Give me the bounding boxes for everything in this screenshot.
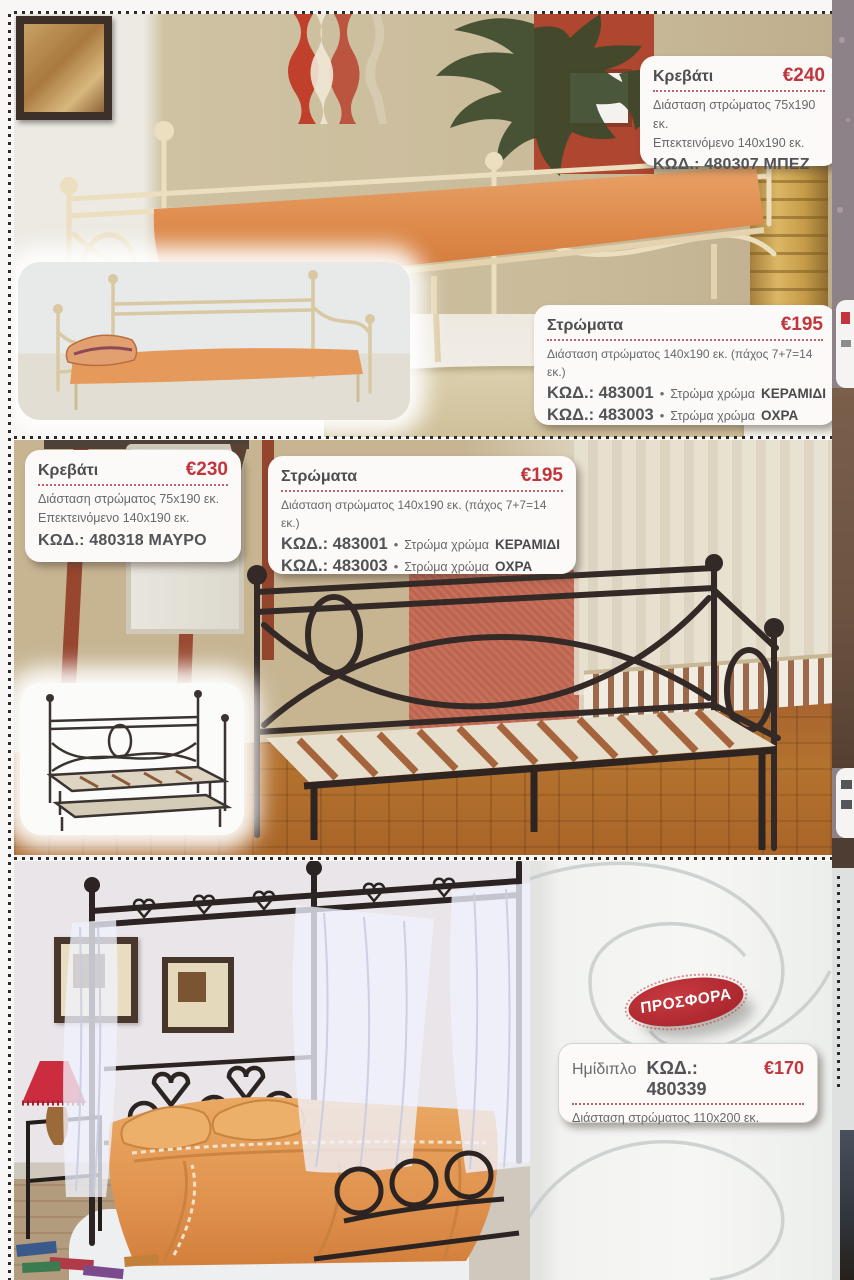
left-dotted-border bbox=[8, 14, 11, 1280]
bullet: • bbox=[394, 559, 399, 574]
bullet: • bbox=[660, 386, 665, 401]
product-title: Στρώματα bbox=[281, 468, 357, 486]
product-info-box-bed-beige: Κρεβάτι €240 Διάσταση στρώματος 75x190 ε… bbox=[640, 56, 832, 166]
color-name: ΟΧΡΑ bbox=[761, 408, 798, 423]
mattress-code-row: ΚΩΔ.: 483003 • Στρώμα χρώμα ΟΧΡΑ bbox=[281, 557, 563, 576]
edge-partial-text bbox=[841, 780, 852, 789]
mattress-dimension: Διάσταση στρώματος 75x190 εκ. bbox=[653, 96, 825, 134]
mattress-code-row: ΚΩΔ.: 483003 • Στρώμα χρώμα ΟΧΡΑ bbox=[547, 406, 823, 425]
edge-partial-infobox bbox=[836, 300, 854, 388]
catalog-page: Κρεβάτι €240 Διάσταση στρώματος 75x190 ε… bbox=[0, 0, 854, 1280]
color-name: ΟΧΡΑ bbox=[495, 559, 532, 574]
edge-partial-text bbox=[841, 800, 852, 809]
product-code: ΚΩΔ.: 480318 ΜΑΥΡΟ bbox=[38, 532, 228, 550]
mattress-dimension: Διάσταση στρώματος 140x190 εκ. (πάχος 7+… bbox=[281, 496, 563, 532]
top-bedroom-photo: Κρεβάτι €240 Διάσταση στρώματος 75x190 ε… bbox=[14, 14, 832, 437]
product-code: ΚΩΔ.: 483003 bbox=[281, 557, 388, 576]
product-price: €240 bbox=[783, 65, 825, 87]
canopy-bed-drawing bbox=[14, 861, 530, 1280]
mattress-dimension: Διάσταση στρώματος 140x190 εκ. (πάχος 7+… bbox=[547, 345, 823, 381]
product-info-box-mattresses-middle: Στρώματα €195 Διάσταση στρώματος 140x190… bbox=[268, 456, 576, 574]
edge-dotted-border bbox=[837, 876, 840, 1091]
product-info-box-offer: Ημίδιπλο ΚΩΔ.: 480339 €170 Διάσταση στρώ… bbox=[558, 1043, 818, 1123]
mattress-dimension: Διάσταση στρώματος 75x190 εκ. bbox=[38, 490, 228, 509]
color-text: Στρώμα χρώμα bbox=[404, 538, 489, 552]
offer-badge-label: ΠΡΟΣΦΟΡΑ bbox=[640, 986, 733, 1018]
product-price: €230 bbox=[186, 459, 228, 481]
product-title: Κρεβάτι bbox=[38, 462, 98, 480]
left-margin bbox=[0, 0, 14, 1280]
product-price: €195 bbox=[521, 465, 563, 487]
extendable-dimension: Επεκτεινόμενο 140x190 εκ. bbox=[653, 134, 825, 153]
bullet: • bbox=[660, 408, 665, 423]
product-title: Κρεβάτι bbox=[653, 68, 713, 86]
extendable-dimension: Επεκτεινόμενο 140x190 εκ. bbox=[38, 509, 228, 528]
product-code: ΚΩΔ.: 483003 bbox=[547, 406, 654, 425]
color-name: ΚΕΡΑΜΙΔΙ bbox=[495, 537, 560, 552]
product-price: €170 bbox=[764, 1058, 804, 1079]
edge-partial-price bbox=[841, 312, 850, 324]
product-title: Στρώματα bbox=[547, 317, 623, 335]
color-text: Στρώμα χρώμα bbox=[670, 387, 755, 401]
product-code: ΚΩΔ.: 483001 bbox=[281, 535, 388, 554]
edge-dark-photo bbox=[840, 1130, 854, 1280]
mattress-code-row: ΚΩΔ.: 483001 • Στρώμα χρώμα ΚΕΡΑΜΙΔΙ bbox=[281, 535, 563, 554]
product-name: Ημίδιπλο bbox=[572, 1061, 636, 1079]
mattress-dimension: Διάσταση στρώματος 110x200 εκ. bbox=[572, 1109, 804, 1128]
info-header: Κρεβάτι €230 bbox=[38, 459, 228, 486]
canopy-bed-photo bbox=[14, 861, 530, 1280]
info-header: Στρώματα €195 bbox=[281, 465, 563, 492]
mattress-code-row: ΚΩΔ.: 483001 • Στρώμα χρώμα ΚΕΡΑΜΙΔΙ bbox=[547, 384, 823, 403]
product-price: €195 bbox=[781, 314, 823, 336]
edge-partial-text bbox=[841, 340, 851, 347]
product-code: ΚΩΔ.: 480307 ΜΠΕΖ bbox=[653, 156, 825, 174]
offer-area: ΠΡΟΣΦΟΡΑ Ημίδιπλο ΚΩΔ.: 480339 €170 Διάσ… bbox=[530, 861, 832, 1280]
edge-photo-brown bbox=[832, 388, 854, 768]
section-divider-dotted bbox=[14, 436, 832, 439]
inset-photo-black-bed bbox=[20, 683, 244, 835]
edge-partial-infobox bbox=[836, 768, 854, 838]
edge-wallpaper bbox=[832, 0, 854, 300]
inset-beige-bed-drawing bbox=[18, 262, 410, 420]
product-code: ΚΩΔ.: 483001 bbox=[547, 384, 654, 403]
product-info-box-mattresses-top: Στρώματα €195 Διάσταση στρώματος 140x190… bbox=[534, 305, 832, 425]
inset-photo-beige-bed bbox=[18, 262, 410, 420]
edge-dark-band bbox=[832, 838, 854, 868]
color-text: Στρώμα χρώμα bbox=[404, 560, 489, 574]
middle-bedroom-photo: Κρεβάτι €230 Διάσταση στρώματος 75x190 ε… bbox=[14, 440, 832, 855]
section-divider-dotted bbox=[14, 857, 832, 860]
color-text: Στρώμα χρώμα bbox=[670, 409, 755, 423]
inset-black-bed-drawing bbox=[20, 683, 244, 835]
product-info-box-bed-black: Κρεβάτι €230 Διάσταση στρώματος 75x190 ε… bbox=[25, 450, 241, 562]
info-header: Στρώματα €195 bbox=[547, 314, 823, 341]
bullet: • bbox=[394, 537, 399, 552]
info-header: Ημίδιπλο ΚΩΔ.: 480339 €170 bbox=[572, 1058, 804, 1105]
info-header: Κρεβάτι €240 bbox=[653, 65, 825, 92]
color-name: ΚΕΡΑΜΙΔΙ bbox=[761, 386, 826, 401]
product-code: ΚΩΔ.: 480339 bbox=[646, 1058, 753, 1100]
wall-picture-art bbox=[24, 24, 104, 112]
adjacent-page-edge bbox=[832, 0, 854, 1280]
